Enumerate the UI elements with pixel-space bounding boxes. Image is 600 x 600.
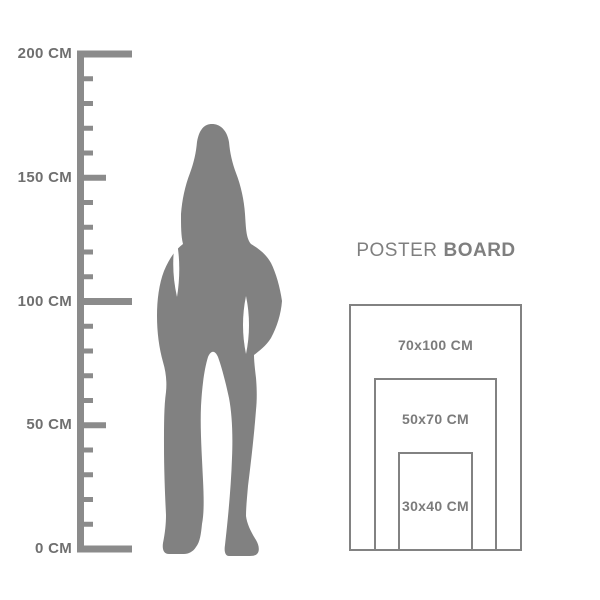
ruler-label-200cm: 200 CM [0, 45, 72, 63]
ruler-tick-0cm [77, 546, 132, 553]
ruler-tick-70cm [77, 373, 93, 378]
ruler-tick-80cm [77, 349, 93, 354]
ruler-tick-180cm [77, 101, 93, 106]
poster-size-label-30x40: 30x40 CM [366, 497, 506, 515]
poster-title-bold: BOARD [443, 240, 515, 261]
ruler-tick-10cm [77, 522, 93, 527]
ruler-tick-100cm [77, 298, 132, 305]
ruler-tick-60cm [77, 398, 93, 403]
ruler-tick-200cm [77, 51, 132, 58]
ruler-tick-20cm [77, 497, 93, 502]
ruler-tick-160cm [77, 151, 93, 156]
size-comparison-chart: 200 CM150 CM100 CM50 CM0 CM POSTERBOARD … [0, 0, 600, 600]
poster-size-label-50x70: 50x70 CM [366, 410, 506, 428]
ruler-tick-140cm [77, 200, 93, 205]
ruler-tick-120cm [77, 250, 93, 255]
poster-size-label-70x100: 70x100 CM [366, 336, 506, 354]
ruler-tick-40cm [77, 448, 93, 453]
ruler-label-50cm: 50 CM [0, 416, 72, 434]
ruler-tick-90cm [77, 324, 93, 329]
ruler-tick-190cm [77, 76, 93, 81]
ruler-label-150cm: 150 CM [0, 169, 72, 187]
ruler-tick-170cm [77, 126, 93, 131]
ruler-tick-50cm [77, 422, 106, 428]
ruler-label-100cm: 100 CM [0, 293, 72, 311]
ruler-tick-110cm [77, 274, 93, 279]
ruler-tick-150cm [77, 175, 106, 181]
ruler-label-0cm: 0 CM [0, 540, 72, 558]
woman-silhouette [157, 124, 282, 556]
height-ruler [77, 51, 132, 553]
poster-board-title: POSTERBOARD [336, 240, 536, 262]
ruler-tick-130cm [77, 225, 93, 230]
poster-title-regular: POSTER [356, 240, 437, 261]
ruler-tick-30cm [77, 472, 93, 477]
